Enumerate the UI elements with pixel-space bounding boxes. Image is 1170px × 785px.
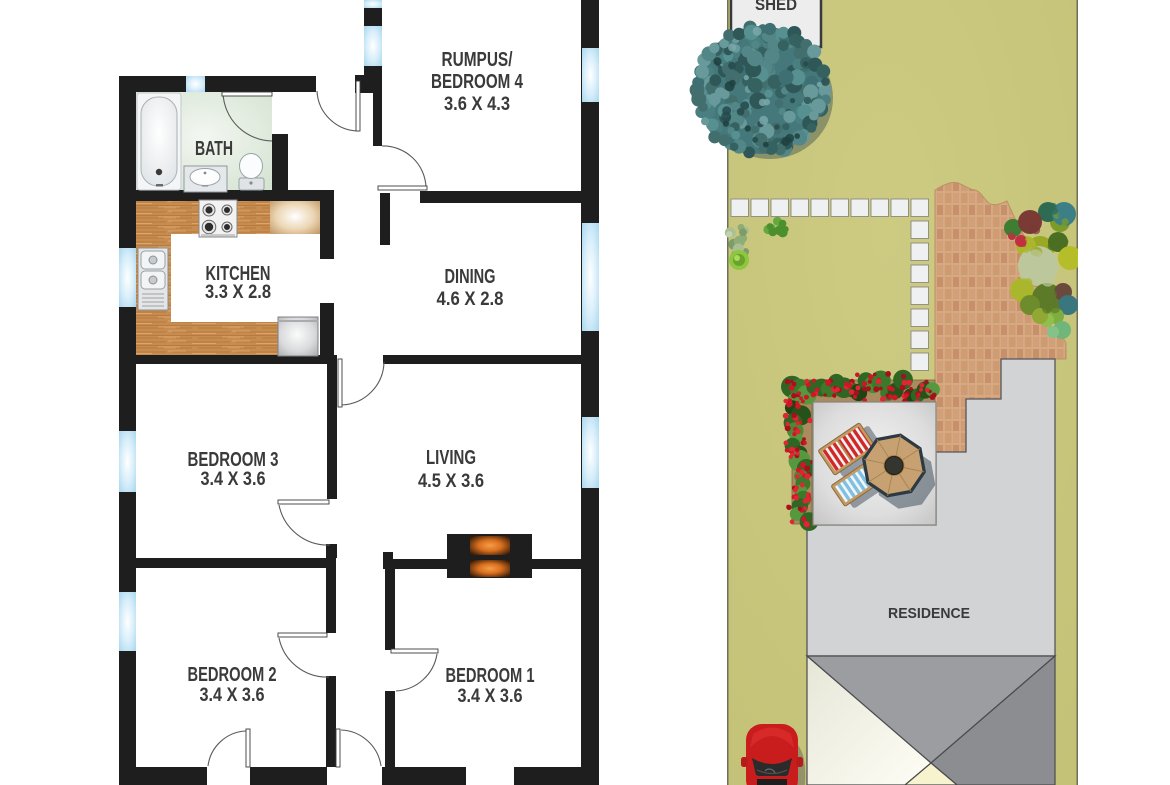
svg-text:BEDROOM 2: BEDROOM 2 [187,663,276,686]
svg-text:3.6 X 4.3: 3.6 X 4.3 [444,93,510,114]
svg-text:3.4 X 3.6: 3.4 X 3.6 [200,684,265,705]
svg-text:4.6 X 2.8: 4.6 X 2.8 [437,288,504,309]
svg-text:BATH: BATH [195,136,233,159]
svg-text:BEDROOM 4: BEDROOM 4 [431,70,523,93]
svg-text:3.4 X 3.6: 3.4 X 3.6 [458,685,523,706]
svg-text:RUMPUS/: RUMPUS/ [442,48,513,70]
svg-text:3.4 X 3.6: 3.4 X 3.6 [201,468,266,489]
svg-text:DINING: DINING [444,265,495,288]
svg-text:LIVING: LIVING [426,446,476,469]
svg-text:RESIDENCE: RESIDENCE [888,606,970,623]
svg-text:4.5 X 3.6: 4.5 X 3.6 [418,470,484,491]
svg-text:SHED: SHED [755,0,797,14]
svg-text:3.3 X 2.8: 3.3 X 2.8 [205,281,271,302]
svg-text:BEDROOM 1: BEDROOM 1 [445,664,534,687]
